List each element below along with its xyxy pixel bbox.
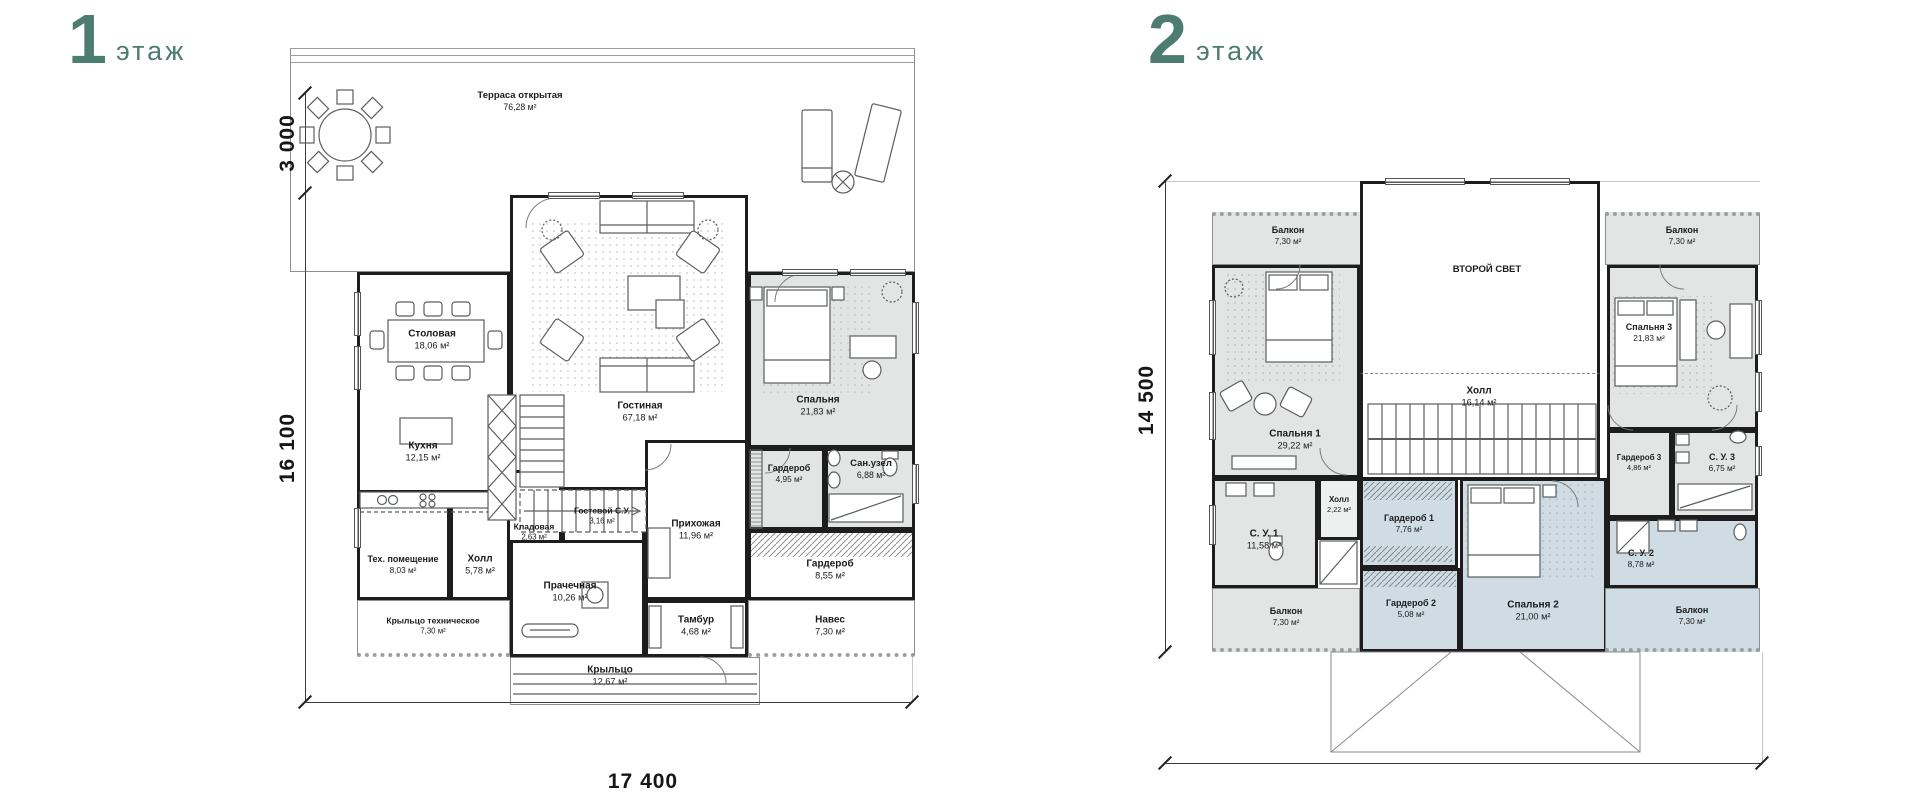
room-void (1360, 181, 1600, 373)
window-marker (782, 269, 838, 276)
window-marker (354, 508, 361, 548)
room-label-balcony-bl: Балкон7,30 м² (1270, 606, 1303, 628)
window-marker (1755, 300, 1762, 355)
window-marker (1209, 392, 1216, 440)
room-label-balcony-tl: Балкон7,30 м² (1272, 225, 1305, 247)
window-marker (632, 192, 684, 199)
room-label-entry-hall: Прихожая11,96 м² (671, 518, 720, 543)
room-label-void: ВТОРОЙ СВЕТ (1453, 264, 1521, 276)
room-label-wardrobe2: Гардероб 25,08 м² (1386, 598, 1436, 620)
extension-line (912, 657, 913, 702)
room-label-hall-small: Холл2,22 м² (1327, 495, 1351, 515)
room-label-vestibule: Тамбур4,68 м² (678, 614, 714, 639)
room-label-hall2: Холл16,14 м² (1462, 385, 1497, 410)
floor1-bottom-dim-line (305, 702, 912, 703)
room-label-tech-porch: Крыльцо техническое7,30 м² (386, 615, 479, 636)
floor-plans-canvas: 1 этаж 2 этаж Терраса открытая76,28 м²Ст… (0, 0, 1920, 800)
window-marker (1490, 178, 1570, 185)
room-label-bedroom1: Спальня 129,22 м² (1269, 428, 1321, 453)
room-label-wardrobe3: Гардероб 34,86 м² (1617, 453, 1661, 473)
room-dining-kitchen-block (357, 272, 510, 527)
room-label-terrace: Терраса открытая76,28 м² (477, 90, 562, 114)
floor1-dim-terrace-depth: 3 000 (276, 114, 300, 172)
room-porch (510, 657, 760, 705)
room-bedroom2 (1460, 478, 1607, 652)
room-label-porch: Крыльцо12,67 м² (587, 664, 633, 689)
window-marker (1209, 505, 1216, 545)
room-label-living: Гостиная67,18 м² (617, 400, 662, 425)
window-marker (1755, 372, 1762, 412)
floor1-plan: Терраса открытая76,28 м²Столовая18,06 м²… (230, 40, 930, 800)
room-label-wardrobe-small: Гардероб4,95 м² (768, 463, 811, 485)
window-marker (548, 192, 600, 199)
room-hall1 (450, 490, 510, 600)
room-bedroom (748, 272, 915, 448)
floor1-dim-width: 17 400 (608, 770, 678, 794)
extension-line (1762, 652, 1763, 763)
room-label-canopy: Навес7,30 м² (815, 614, 845, 639)
floor1-rooms: Терраса открытая76,28 м²Столовая18,06 м²… (230, 40, 930, 800)
room-label-sanuzel: Сан.узел6,88 м² (850, 458, 892, 482)
room-label-balcony-br: Балкон7,30 м² (1676, 605, 1709, 627)
room-label-kitchen: Кухня12,15 м² (406, 440, 441, 465)
room-label-pantry: Кладовая2,63 м² (514, 521, 555, 542)
window-marker (1755, 446, 1762, 476)
room-wardrobe-small (748, 448, 825, 530)
room-tech-room (357, 490, 450, 600)
room-label-balcony-tr: Балкон7,30 м² (1666, 225, 1699, 247)
room-wardrobe3 (1607, 430, 1672, 518)
window-marker (850, 269, 906, 276)
extension-line (1600, 181, 1760, 182)
floor1-title-word: этаж (116, 36, 186, 67)
window-marker (1385, 178, 1465, 185)
room-label-bedroom: Спальня21,83 м² (796, 394, 839, 419)
window-marker (912, 302, 919, 354)
room-label-wardrobe-big: Гардероб8,55 м² (806, 558, 853, 583)
room-label-hall1: Холл5,78 м² (465, 553, 495, 578)
room-label-tech-room: Тех. помещение8,03 м² (368, 554, 439, 576)
room-label-bedroom3: Спальня 321,83 м² (1626, 322, 1672, 344)
terrace-deck-edge (290, 48, 915, 64)
window-marker (912, 464, 919, 504)
floor2-dim-width: 17 400 (1465, 732, 1535, 756)
room-bedroom3 (1607, 265, 1758, 430)
floor2-plan: Балкон7,30 м²Балкон7,30 м²ВТОРОЙ СВЕТХол… (1100, 0, 1840, 800)
floor2-left-dim-line (1165, 181, 1166, 652)
room-label-wc3: С. У. 36,75 м² (1709, 452, 1736, 474)
room-label-bedroom2: Спальня 221,00 м² (1507, 599, 1559, 624)
room-label-guest-wc: Гостевой С.У.3,16 м² (574, 505, 630, 526)
floor1-left-dim-line (305, 93, 306, 702)
floor2-dim-height: 14 500 (1135, 365, 1159, 435)
floor2-bottom-dim-line (1165, 763, 1762, 764)
window-marker (354, 292, 361, 336)
room-label-wc2: С. У. 28,78 м² (1628, 548, 1655, 570)
room-label-laundry: Прачечная10,26 м² (544, 580, 597, 605)
window-marker (1209, 300, 1216, 355)
room-label-dining: Столовая18,06 м² (408, 328, 456, 353)
room-label-wardrobe1: Гардероб 17,76 м² (1384, 513, 1434, 535)
floor1-dim-height: 16 100 (276, 413, 300, 483)
window-marker (354, 346, 361, 390)
extension-line (1165, 181, 1360, 182)
floor1-title-number: 1 (68, 8, 107, 71)
room-label-wc1: С. У. 111,58 м² (1247, 528, 1281, 553)
floor1-title: 1 этаж (68, 8, 186, 71)
